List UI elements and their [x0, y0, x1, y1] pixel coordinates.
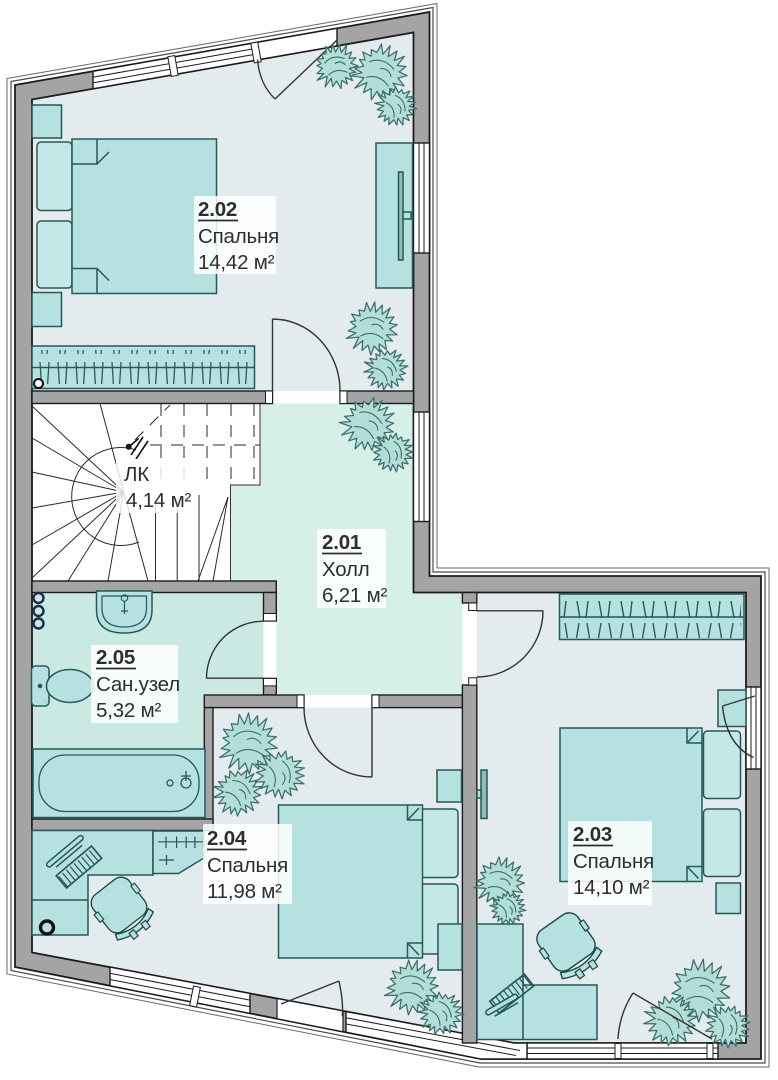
- svg-text:2.02: 2.02: [198, 198, 237, 221]
- svg-text:14,10 м²: 14,10 м²: [573, 876, 650, 899]
- svg-text:5,32 м²: 5,32 м²: [96, 699, 161, 722]
- svg-text:6,21 м²: 6,21 м²: [322, 584, 387, 607]
- svg-text:4,14 м²: 4,14 м²: [126, 489, 191, 512]
- svg-text:Спальня: Спальня: [198, 225, 279, 248]
- svg-text:2.05: 2.05: [96, 646, 135, 669]
- svg-text:2.04: 2.04: [207, 827, 247, 850]
- svg-text:11,98 м²: 11,98 м²: [207, 880, 282, 903]
- svg-text:Спальня: Спальня: [573, 850, 654, 873]
- svg-text:2.03: 2.03: [573, 823, 612, 846]
- svg-text:Спальня: Спальня: [207, 854, 288, 877]
- svg-text:ЛК: ЛК: [124, 463, 149, 486]
- svg-text:2.01: 2.01: [322, 531, 361, 554]
- svg-text:Сан.узел: Сан.узел: [96, 673, 180, 696]
- svg-text:Холл: Холл: [322, 558, 370, 581]
- svg-text:14,42 м²: 14,42 м²: [198, 251, 275, 274]
